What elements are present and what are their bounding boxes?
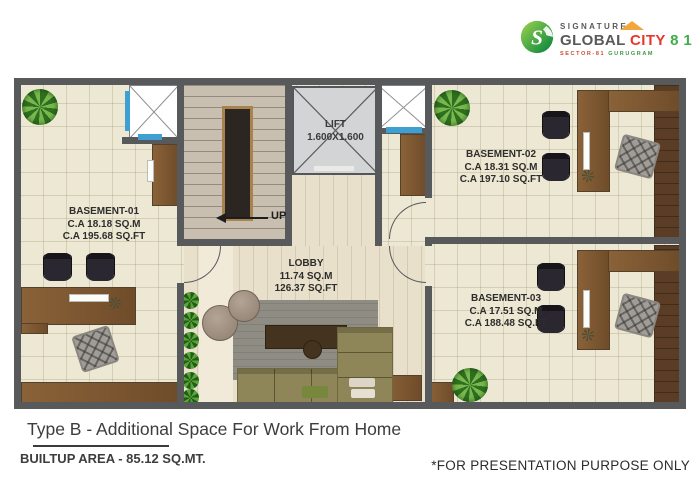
disclaimer: *FOR PRESENTATION PURPOSE ONLY <box>431 458 690 473</box>
duct-shaft <box>129 85 179 139</box>
office-chair <box>44 253 71 281</box>
wall <box>375 85 382 246</box>
plant-icon <box>182 292 199 309</box>
shaft-accent <box>386 127 422 133</box>
room-name: BASEMENT-02 <box>431 149 571 162</box>
brand-logo: S SIGNATURE GLOBAL CITY 8 1 SECTOR-81 GU… <box>518 16 694 66</box>
plant-icon <box>182 352 199 369</box>
desk-board <box>147 160 154 182</box>
room-sqm: C.A 18.31 SQ.M <box>431 162 571 175</box>
wall <box>425 286 432 402</box>
lift-shaft: LIFT 1.600X1.600 <box>292 86 379 175</box>
logo-city: CITY <box>630 32 666 49</box>
room-name: BASEMENT-01 <box>24 206 184 219</box>
up-label: UP <box>271 210 286 222</box>
roof-icon <box>620 21 644 30</box>
up-arrow-icon <box>216 213 226 223</box>
room-name: BASEMENT-03 <box>436 293 576 306</box>
desk-plant-icon <box>109 297 121 309</box>
room-sqft: 126.37 SQ.FT <box>236 283 376 296</box>
logo-tagline-sector: SECTOR-81 <box>560 51 608 57</box>
basement02-desk-return <box>608 90 681 112</box>
logo-tagline-city: GURUGRAM <box>608 51 654 57</box>
logo-global: GLOBAL <box>560 32 630 49</box>
plant-icon <box>22 89 58 125</box>
desk-board <box>583 132 590 170</box>
white-cushion <box>349 378 375 387</box>
builtup-area: BUILTUP AREA - 85.12 SQ.MT. <box>20 451 206 466</box>
x-brace <box>379 86 428 129</box>
basement03-label: BASEMENT-03 C.A 17.51 SQ.M C.A 188.48 SQ… <box>436 293 576 331</box>
duct-shaft <box>378 85 429 130</box>
desk-board <box>583 290 590 328</box>
office-chair <box>87 253 114 281</box>
wall <box>14 78 686 85</box>
wall <box>177 239 292 246</box>
desk-plant-icon <box>582 170 594 182</box>
lift-door <box>314 166 354 171</box>
office-chair <box>543 111 569 139</box>
white-cushion <box>351 389 375 398</box>
plant-icon <box>182 312 199 329</box>
basement01-label: BASEMENT-01 C.A 18.18 SQ.M C.A 195.68 SQ… <box>24 206 184 244</box>
lift-vestibule-floor <box>292 171 375 246</box>
up-arrow-line <box>226 217 268 219</box>
wall <box>14 78 21 409</box>
svg-text:S: S <box>531 26 543 50</box>
side-table <box>303 340 322 359</box>
signature-global-leaf-s-icon: S <box>520 20 554 54</box>
basement03-desk-return <box>608 250 681 272</box>
desk-paper <box>69 294 109 302</box>
basement01-desk-return <box>21 323 48 334</box>
stair-void <box>222 106 253 221</box>
lift-name: LIFT <box>307 118 364 131</box>
wall <box>679 78 686 409</box>
shaft-accent <box>125 91 130 131</box>
room-sqm: C.A 17.51 SQ.M <box>436 306 576 319</box>
floor-plan: LIFT 1.600X1.600 <box>14 78 686 409</box>
logo-number: 8 1 <box>666 32 693 49</box>
logo-tagline: SECTOR-81 GURUGRAM <box>560 51 690 57</box>
room-sqm: 11.74 SQ.M <box>236 271 376 284</box>
floor-plan-page: S SIGNATURE GLOBAL CITY 8 1 SECTOR-81 GU… <box>0 0 699 489</box>
room-sqft: C.A 195.68 SQ.FT <box>24 231 184 244</box>
wall <box>14 402 686 409</box>
desk-plant-icon <box>582 329 594 341</box>
wall <box>425 237 679 244</box>
plant-icon <box>182 332 199 349</box>
plant-icon <box>182 372 199 389</box>
room-name: LOBBY <box>236 258 376 271</box>
logo-text-block: SIGNATURE GLOBAL CITY 8 1 SECTOR-81 GURU… <box>560 22 690 57</box>
lobby-label: LOBBY 11.74 SQ.M 126.37 SQ.FT <box>236 258 376 296</box>
plant-icon <box>452 368 488 402</box>
wall <box>177 283 184 402</box>
title-underline <box>33 445 169 447</box>
reception-desk <box>152 144 179 206</box>
room-sqm: C.A 18.18 SQ.M <box>24 219 184 232</box>
logo-brand-line: GLOBAL CITY 8 1 <box>560 32 690 49</box>
green-cushion <box>302 386 328 398</box>
x-brace <box>130 86 178 138</box>
shaft-accent <box>138 134 162 140</box>
lift-label: LIFT 1.600X1.600 <box>307 118 364 144</box>
plant-icon <box>434 90 470 126</box>
basement01-credenza <box>21 382 179 404</box>
corridor-cabinet <box>400 134 427 196</box>
basement02-label: BASEMENT-02 C.A 18.31 SQ.M C.A 197.10 SQ… <box>431 149 571 187</box>
plan-title: Type B - Additional Space For Work From … <box>27 419 401 440</box>
office-chair <box>538 263 564 291</box>
room-sqft: C.A 197.10 SQ.FT <box>431 174 571 187</box>
room-sqft: C.A 188.48 SQ.FT <box>436 318 576 331</box>
lift-size: 1.600X1.600 <box>307 131 364 144</box>
